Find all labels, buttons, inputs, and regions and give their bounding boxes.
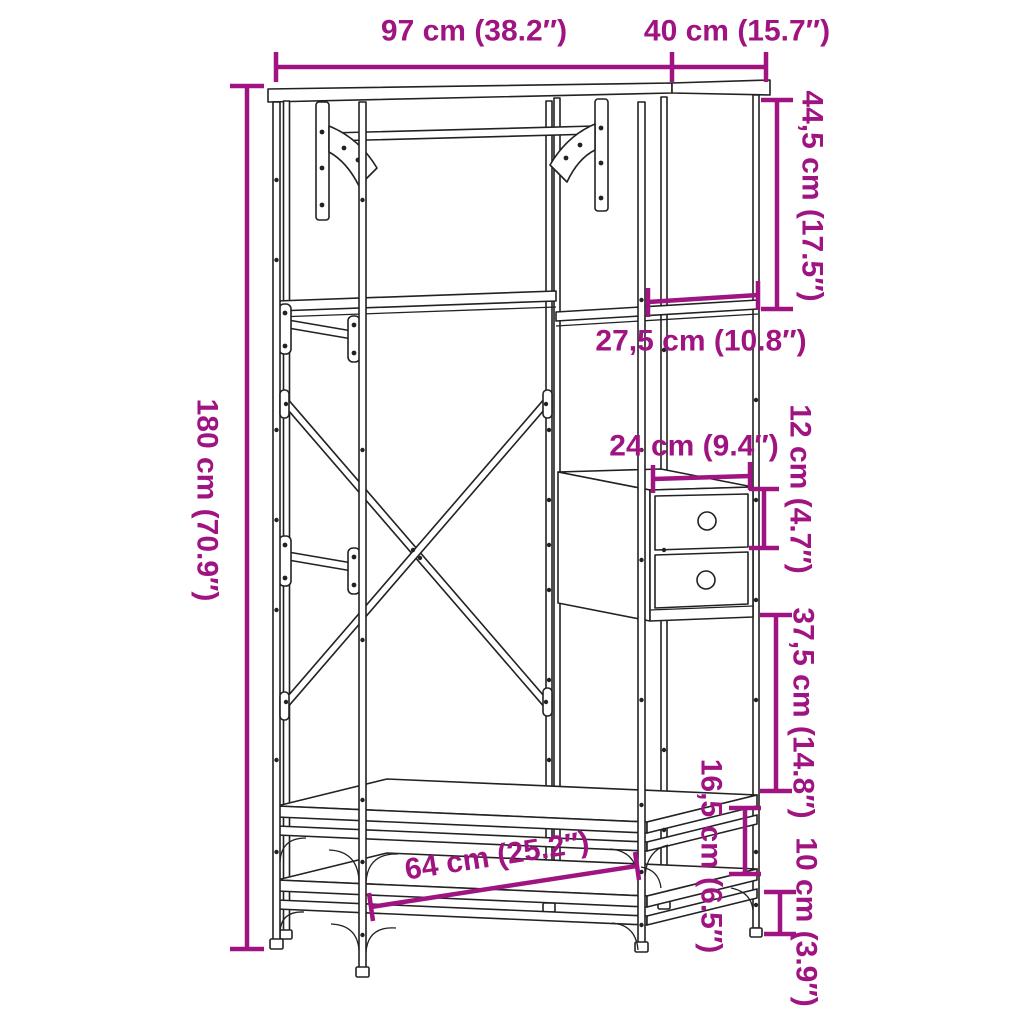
dim-bench-shelf-gap: 16,5 cm (6.5″) bbox=[695, 759, 762, 953]
foot-mid bbox=[543, 903, 555, 912]
foot-front-left bbox=[270, 939, 283, 949]
top-panel-side bbox=[672, 80, 770, 95]
dim-label-drawer-height: 12 cm (4.7″) bbox=[784, 404, 817, 573]
dim-label-bottom-clearance: 10 cm (3.9″) bbox=[790, 837, 823, 1006]
drawer-unit-side bbox=[558, 472, 650, 621]
dim-label-overall-depth: 40 cm (15.7″) bbox=[644, 15, 830, 48]
drawer-knob-top bbox=[698, 512, 716, 530]
dim-upper-right-compartment: 44,5 cm (17.5″) bbox=[761, 90, 829, 309]
top-panel-front bbox=[268, 83, 672, 102]
dimension-diagram: 97 cm (38.2″) 40 cm (15.7″) 180 cm (70.9… bbox=[0, 0, 1024, 1024]
dim-label-shelf-depth: 27,5 cm (10.8″) bbox=[595, 325, 806, 358]
foot-front-middle bbox=[356, 967, 369, 977]
foot-back-right bbox=[750, 928, 762, 937]
diagram-canvas: 97 cm (38.2″) 40 cm (15.7″) 180 cm (70.9… bbox=[0, 0, 1024, 1024]
foot-back-left bbox=[280, 930, 292, 939]
drawer-knob-bottom bbox=[697, 571, 715, 589]
dim-overall-width: 97 cm (38.2″) bbox=[276, 15, 672, 83]
rail-bracket-left bbox=[316, 102, 377, 220]
tie-bar-upper bbox=[279, 304, 360, 362]
tie-bar-lower bbox=[279, 536, 360, 594]
post-front-middle bbox=[359, 102, 366, 969]
dim-line-drawer-width bbox=[653, 476, 750, 479]
dim-overall-height: 180 cm (70.9″) bbox=[191, 86, 265, 949]
cross-brace bbox=[281, 398, 550, 709]
dim-label-lower-right: 37,5 cm (14.8″) bbox=[787, 607, 820, 818]
dim-label-bench-gap: 16,5 cm (6.5″) bbox=[695, 759, 728, 953]
dim-bottom-clearance: 10 cm (3.9″) bbox=[764, 837, 823, 1006]
post-front-right bbox=[638, 102, 645, 944]
drawer-unit bbox=[558, 469, 753, 621]
dim-label-overall-width: 97 cm (38.2″) bbox=[381, 15, 567, 48]
dim-lower-right-compartment: 37,5 cm (14.8″) bbox=[760, 607, 820, 818]
dim-label-overall-height: 180 cm (70.9″) bbox=[191, 399, 224, 602]
dim-label-upper-right: 44,5 cm (17.5″) bbox=[796, 90, 829, 301]
dim-label-drawer-width: 24 cm (9.4″) bbox=[609, 430, 778, 463]
